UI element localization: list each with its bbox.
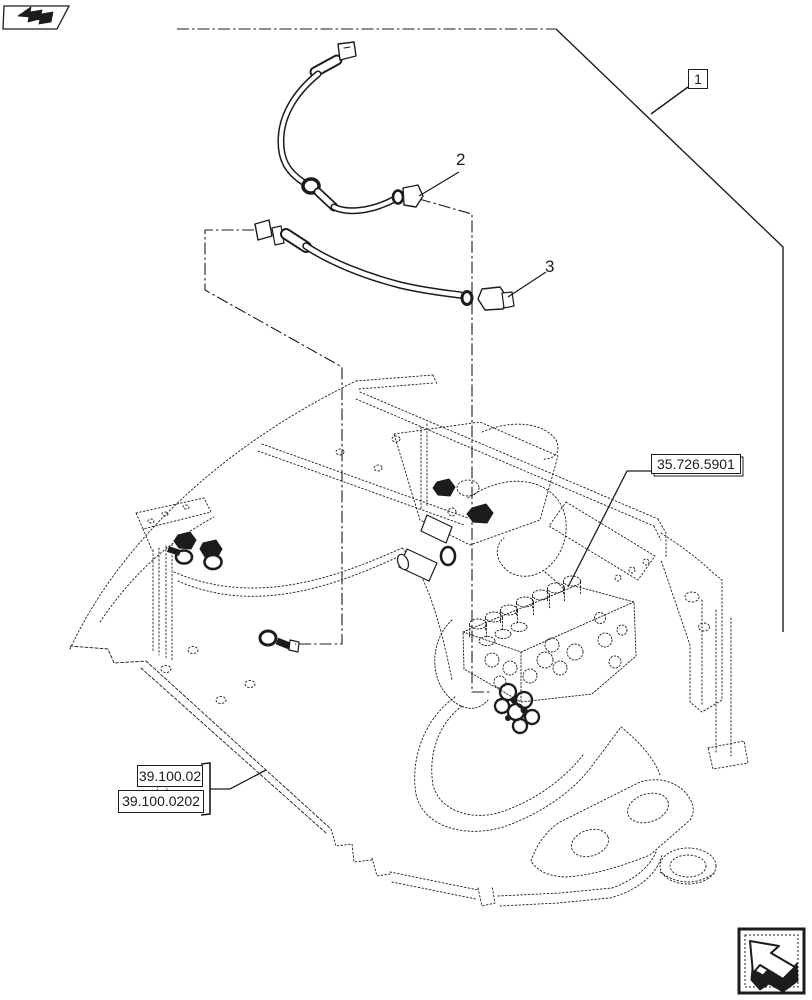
chassis-subsection-reference[interactable]: 39.100.0202 [118,790,204,813]
callout-item-3[interactable]: 3 [545,257,554,277]
callout-item-2[interactable]: 2 [456,150,465,170]
frame-fittings-drawing [168,479,493,652]
diagram-page: 1 2 3 35.726.5901 39.100.02 39.100.0202 [0,0,812,1000]
chassis-section-reference[interactable]: 39.100.02 [137,765,203,787]
hose-2-drawing [281,42,423,211]
hose-3-drawing [255,220,514,310]
diagram-artwork [0,0,812,1000]
valve-drawing [435,576,636,733]
page-forward-icon[interactable] [739,929,804,993]
callout-leader-lines [201,172,651,815]
callout-item-1[interactable]: 1 [688,69,708,89]
kit-boundary-line [556,29,783,632]
valve-section-reference[interactable]: 35.726.5901 [651,454,741,474]
zone-dashdot-lines [177,29,556,692]
page-back-icon[interactable] [3,6,69,29]
machine-frame-drawing [70,375,748,906]
